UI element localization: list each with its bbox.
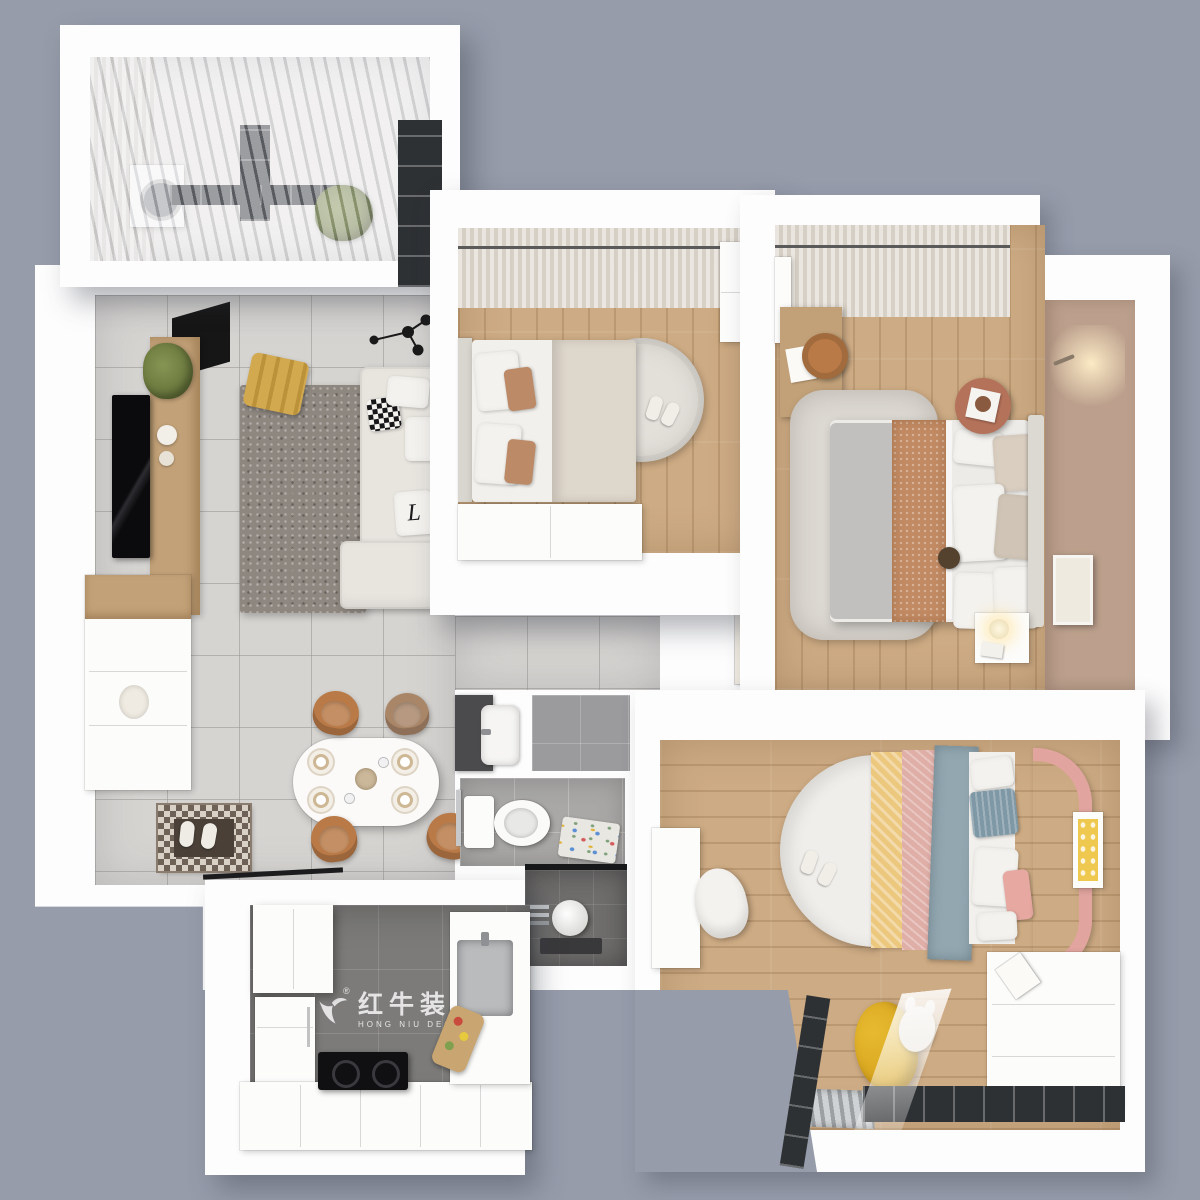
bedroom-top-curtains: [458, 228, 752, 308]
curtain-rod: [775, 245, 1010, 248]
kitchen-block: ® 红牛装饰 HONG NIU DECORATION: [205, 880, 525, 1175]
towel-bar: [456, 790, 461, 846]
accent-pillow-tan: [504, 439, 536, 486]
master-bedroom-block: [740, 195, 1170, 745]
kitchen-sink: [457, 940, 513, 1016]
master-headboard: [1028, 415, 1044, 627]
round-side-table: [955, 378, 1011, 434]
toilet-tank: [464, 796, 494, 848]
curtain-rod: [458, 246, 752, 249]
shower-stool: [552, 900, 588, 936]
nightstand: [975, 613, 1029, 663]
fridge-handle: [307, 1007, 310, 1047]
monogram-pillow: L: [394, 490, 435, 537]
hallway-floor: [455, 616, 660, 690]
table-lamp: [989, 619, 1009, 639]
decor-vase: [157, 425, 177, 445]
fridge: [255, 997, 315, 1087]
balcony-block: [60, 25, 460, 287]
kids-wall-art: [1073, 812, 1103, 888]
glass: [345, 794, 354, 803]
centerpiece: [355, 768, 377, 790]
shower-bench: [540, 938, 602, 954]
upper-cabinet: [253, 905, 333, 993]
kids-pillow: [969, 755, 1015, 791]
master-throw-blanket: [892, 420, 946, 622]
lounge-chair: [242, 352, 310, 417]
bull-logo-icon: [313, 993, 349, 1029]
television: [112, 395, 150, 558]
kids-blue-pillow: [969, 788, 1020, 839]
sofa-pillow: [386, 375, 430, 409]
bed-duvet: [552, 340, 636, 502]
wall-lamp-glow: [1050, 325, 1125, 410]
bed-headboard: [458, 338, 472, 502]
plate: [393, 750, 417, 774]
bedroom-top-block: [430, 190, 775, 615]
decor-bowl: [159, 451, 174, 466]
master-curtains: [775, 225, 1010, 317]
kids-bedroom-block: [635, 690, 1145, 1172]
master-desk-chair: [802, 333, 848, 379]
sheet-fold: [946, 421, 952, 619]
foot-platform: [458, 504, 642, 560]
entry-sideboard: [85, 575, 191, 790]
entry-doormat: [158, 805, 250, 871]
dining-table: [293, 738, 439, 826]
plate: [309, 750, 333, 774]
art-inner: [1078, 819, 1098, 881]
dish: [975, 396, 991, 412]
plate: [309, 788, 333, 812]
pompom-cushion: [938, 547, 960, 569]
toilet-bowl: [494, 800, 550, 846]
glass-roof-overlay: [90, 57, 430, 261]
kitchen-counter: [240, 1082, 532, 1150]
monogram-letter: L: [406, 499, 421, 527]
plate: [393, 788, 417, 812]
accent-pillow-tan: [503, 366, 537, 411]
shower-fixture: [527, 905, 549, 909]
washbasin: [481, 705, 519, 765]
floor-plan-canvas: L: [0, 0, 1200, 1200]
master-accent-wall: [1045, 300, 1135, 690]
book: [980, 642, 1004, 659]
living-plant: [143, 343, 193, 399]
bath-mat: [557, 816, 620, 864]
cooktop: [318, 1052, 408, 1090]
vanity-backsplash: [532, 695, 630, 771]
sideboard-decor: [119, 685, 149, 719]
registered-mark: ®: [343, 986, 350, 996]
kids-desk: [652, 828, 700, 968]
glass: [379, 758, 388, 767]
ceiling-lamp-icon: [368, 310, 434, 356]
open-book: [995, 953, 1040, 1000]
kids-dresser: [987, 952, 1120, 1107]
sink-faucet: [481, 932, 489, 946]
sideboard-wood-top: [85, 575, 191, 619]
wall-art-frame: [1053, 555, 1093, 625]
kids-pillow: [976, 911, 1017, 941]
basin-faucet: [481, 729, 491, 735]
